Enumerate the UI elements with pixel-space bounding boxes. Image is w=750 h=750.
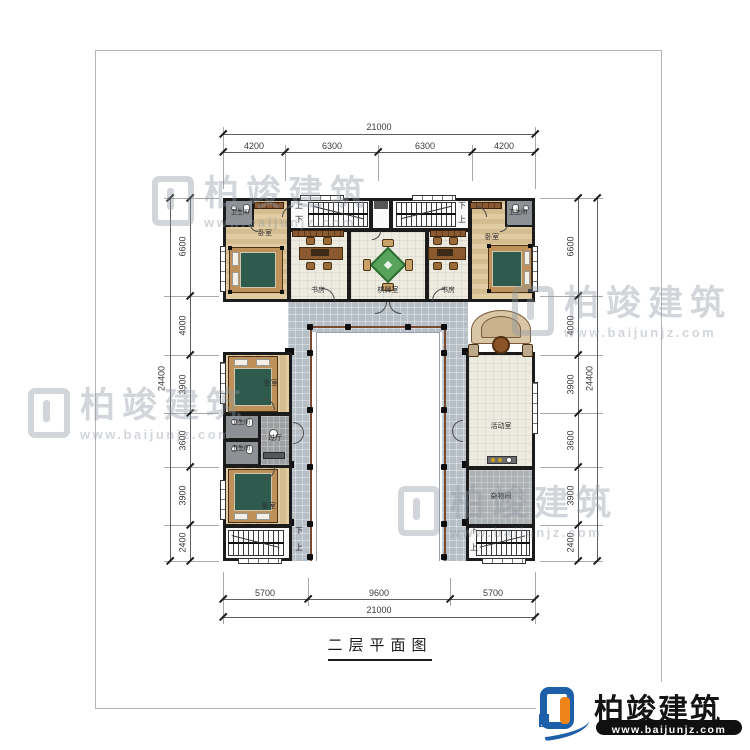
column [441,324,447,330]
dim-right-seg-5: 2400 [567,521,576,565]
bed-pillow [234,513,248,520]
stair-rail [476,542,530,544]
dim-line-bottom-total [223,617,535,618]
dim-top-seg-0: 4200 [224,142,284,151]
dim-left-total: 24400 [158,357,167,401]
stair-rail [396,213,456,215]
window [220,246,226,292]
column [307,521,313,527]
bed-post [228,246,232,250]
brand-url-pill: www.baijunjz.com [596,720,742,735]
hall-cabinet [263,452,285,459]
extension-line [164,413,219,414]
label-hall: 过厅 [261,435,289,442]
railing-inner-left [316,332,317,561]
dim-top-seg-2: 6300 [395,142,455,151]
extension-line [164,561,219,562]
dim-left-seg-2: 3900 [179,363,188,407]
dim-line-top-total [223,134,535,135]
dim-left-seg-4: 3900 [179,474,188,518]
chair [306,237,315,245]
vase [498,458,502,462]
extension-line [223,127,224,189]
dim-left-seg-1: 4000 [179,304,188,348]
extension-line [164,525,219,526]
bowl [506,457,512,463]
bed-rug [240,252,276,288]
desk-plaque [437,249,453,256]
room-activity [466,352,535,469]
column [441,464,447,470]
drawing-title: 二层平面图 [310,638,450,653]
dim-bottom-seg-2: 5700 [463,589,523,598]
bed-post [487,289,491,293]
bed-post [280,246,284,250]
column [441,350,447,356]
railing-inner-right [439,332,440,561]
column [307,407,313,413]
bed-pillow [256,513,270,520]
label-bedroom-bottom-left: 卧室 [252,503,286,510]
window [300,195,344,201]
stool [382,239,394,247]
chair [433,237,442,245]
bed-pillow [256,359,270,366]
bed-rug [492,251,522,287]
label-storage: 杂物间 [480,493,522,500]
bed-pillow [232,272,239,286]
window [220,362,226,404]
column [345,324,351,330]
label-activity: 活动室 [480,423,522,430]
chair [433,262,442,270]
floorplan-page: 卫生间 卧室 上 下 下 上 卧室 卫生间 书房 棋牌室 书房 卧室 卫生间 卫… [0,0,750,750]
label-bath-top-left: 卫生间 [227,210,253,216]
label-bedroom-top-right: 卧室 [472,234,512,241]
watermark-logo-icon [28,388,70,438]
column [441,407,447,413]
dim-left-seg-0: 6600 [179,225,188,269]
window [220,480,226,520]
window [412,195,456,201]
stool [405,259,413,271]
column [441,554,447,560]
label-study-left: 书房 [300,287,336,294]
label-bedroom-top-left: 卧室 [243,230,287,237]
label-bath-left-2: 卫生间 [226,446,256,452]
cabinet [430,230,466,237]
label-up: 上 [468,544,480,552]
stool [363,259,371,271]
extension-line [450,578,451,606]
dim-right-seg-3: 3600 [567,419,576,463]
dim-bottom-seg-1: 9600 [349,589,409,598]
window [482,558,526,564]
room-bath-left-2 [223,439,261,467]
armchair [522,344,533,357]
extension-line [164,355,219,356]
dim-bottom-total: 21000 [329,606,429,615]
chair [323,237,332,245]
brand-url: www.baijunjz.com [612,724,727,736]
column [307,464,313,470]
label-bath-left-1: 卫生间 [226,420,256,426]
fan-sofa-lines [481,316,521,338]
desk-plaque [311,249,329,256]
label-chess: 棋牌室 [366,287,410,294]
dim-line-left-segs [190,198,191,561]
extension-line [535,127,536,189]
vase [491,458,495,462]
dim-right-seg-4: 3900 [567,474,576,518]
label-up: 上 [293,202,305,210]
extension-line [540,467,603,468]
room-bath-left-1 [223,413,261,441]
chair [449,262,458,270]
bed-pillow [524,271,530,285]
dim-line-bottom-segs [223,599,535,600]
dim-right-seg-0: 6600 [567,225,576,269]
label-up: 上 [456,216,468,224]
brand-logo: 柏竣建筑 www.baijunjz.com [536,682,750,742]
dim-right-seg-1: 4000 [567,304,576,348]
label-bath-top-right: 卫生间 [505,210,531,216]
dim-bottom-seg-0: 5700 [235,589,295,598]
courtyard-railing-top [310,326,446,328]
extension-line [540,413,603,414]
bed-post [280,290,284,294]
bed-post [228,290,232,294]
dim-right-seg-2: 3900 [567,363,576,407]
column [441,521,447,527]
dim-left-seg-5: 2400 [179,521,188,565]
label-bedroom-mid-left: 卧室 [254,380,288,387]
bed-post [487,244,491,248]
brand-logo-icon [538,684,592,738]
extension-line [308,578,309,606]
chair [323,262,332,270]
extension-line [540,296,603,297]
cabinet [292,230,344,237]
bed-pillow [234,359,248,366]
stair-rail [308,213,368,215]
closet [374,201,388,209]
dim-line-left-total [170,198,171,561]
window [532,382,538,434]
bed-pillow [524,251,530,265]
column [307,554,313,560]
label-down: 下 [468,527,480,535]
wardrobe [254,202,284,209]
wardrobe [470,202,502,209]
dim-line-right-segs [578,198,579,561]
window [238,558,282,564]
round-table [492,336,510,354]
railing-inner-top [316,332,440,333]
extension-line [164,296,219,297]
dim-left-seg-3: 3600 [179,419,188,463]
dim-line-right-total [597,198,598,561]
logo-bar [560,697,570,724]
armchair [468,344,479,357]
label-study-right: 书房 [430,287,466,294]
dim-right-total: 24400 [586,357,595,401]
chair [449,237,458,245]
dim-top-seg-1: 6300 [302,142,362,151]
chair [306,262,315,270]
column [405,324,411,330]
courtyard-void [312,332,442,561]
label-up: 上 [293,544,305,552]
column [307,324,313,330]
label-down: 下 [293,527,305,535]
dim-top-total: 21000 [329,123,429,132]
title-underline [328,659,432,661]
label-down: 下 [293,216,305,224]
extension-line [164,198,219,199]
bed-pillow [232,252,239,266]
window [532,246,538,292]
dim-line-top-segs [223,152,535,153]
extension-line [164,467,219,468]
label-down: 下 [456,202,468,210]
column [307,350,313,356]
dim-top-seg-3: 4200 [474,142,534,151]
